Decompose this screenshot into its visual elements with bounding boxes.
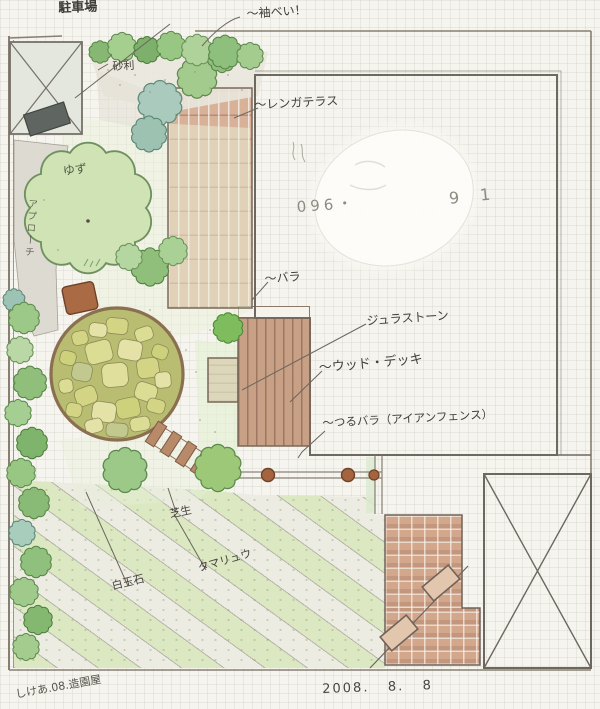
x-crossed-structure: [484, 474, 591, 668]
fence-post: [262, 469, 275, 482]
flagstone-circle: [51, 308, 183, 440]
house-outline: [255, 71, 591, 455]
terracotta-pot: [61, 281, 98, 315]
phone-number-left: 096・: [296, 192, 357, 217]
fence-post: [342, 469, 355, 482]
iron-fence: [238, 469, 382, 482]
label-yuzu-tree: ゆず: [62, 159, 88, 178]
fence-post: [369, 470, 379, 480]
label-gravel: 砂利: [112, 57, 135, 74]
garden-plan-canvas: 駐車場 〜袖べい！ 砂利 ゆず アプローチ 〜レンガテラス 〜バラ ジュラストー…: [0, 0, 600, 709]
parking-square: [10, 42, 82, 136]
label-rose: 〜バラ: [264, 267, 301, 286]
label-parking: 駐車場: [58, 0, 98, 16]
